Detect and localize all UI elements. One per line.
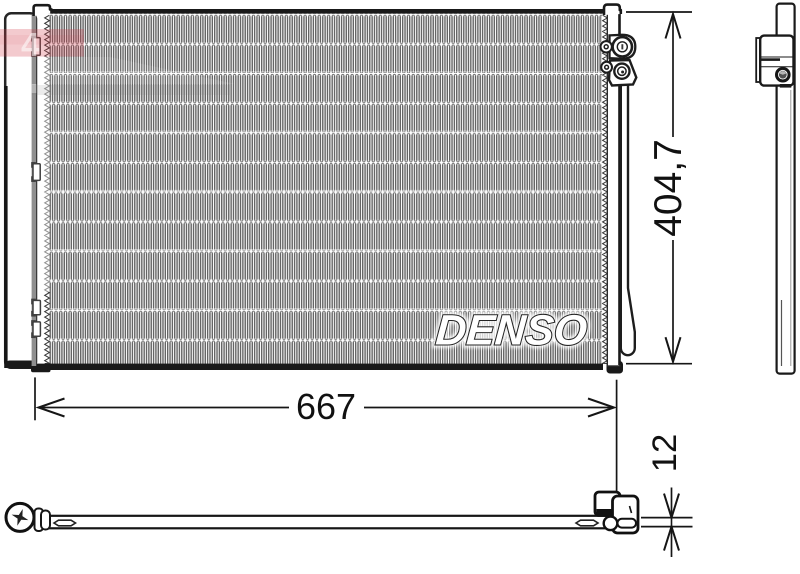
svg-text:12: 12 bbox=[646, 434, 684, 472]
svg-text:404,7: 404,7 bbox=[647, 139, 690, 237]
svg-text:667: 667 bbox=[296, 386, 356, 427]
svg-text:DENSO: DENSO bbox=[434, 307, 588, 355]
svg-text:4: 4 bbox=[21, 26, 40, 63]
